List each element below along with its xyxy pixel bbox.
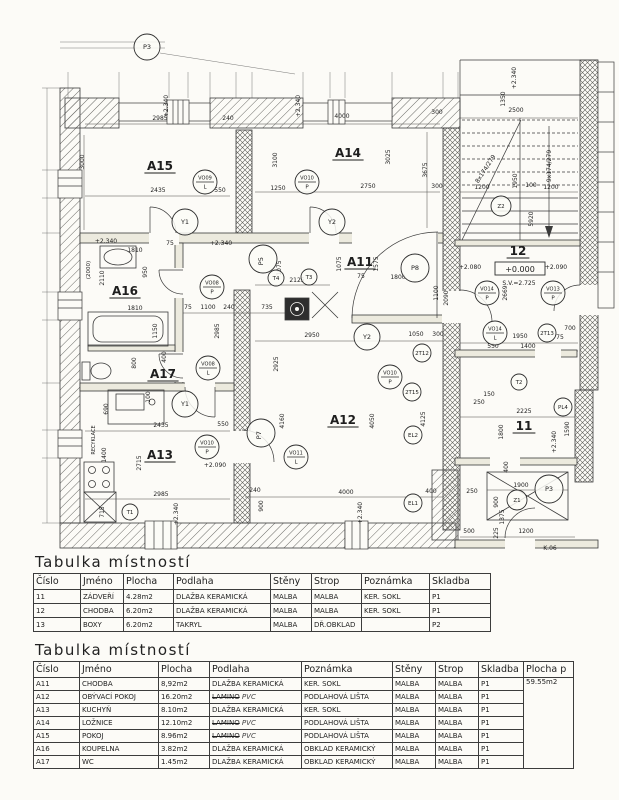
table-header-cell: Poznámka — [362, 574, 430, 590]
table-header-cell: Podlaha — [210, 662, 302, 678]
table-row: A16KOUPELNA3.82m2DLAŽBA KERAMICKÁOBKLAD … — [34, 743, 574, 756]
dimension-label: 75 — [357, 273, 365, 280]
table-cell: 3.82m2 — [159, 743, 210, 756]
dimension-label: 1200 — [518, 528, 533, 535]
dimension-label: 4125 — [420, 411, 427, 426]
table-cell: WC — [80, 756, 159, 769]
dimension-label: 250 — [466, 488, 478, 495]
table-cell: P1 — [430, 604, 491, 618]
table-header-cell: Plocha — [124, 574, 174, 590]
table-row: A12OBÝVACÍ POKOJ16.20m2LAMINO PVCPODLAHO… — [34, 691, 574, 704]
dimension-label: 3100 — [272, 152, 279, 167]
marker-label: VO10 — [300, 176, 314, 182]
table-cell: KER. SOKL — [302, 704, 393, 717]
level-mark: +2.340 — [295, 95, 302, 117]
table-cell: A12 — [34, 691, 80, 704]
table-row: A14LOŽNICE12.10m2LAMINO PVCPODLAHOVÁ LIŠ… — [34, 717, 574, 730]
dimension-label: 2985 — [214, 323, 221, 338]
dimension-label: 2090 — [443, 290, 450, 305]
table-row: A13KUCHYŇ8.10m2DLAŽBA KERAMICKÁKER. SOKL… — [34, 704, 574, 717]
table-cell: CHODBA — [81, 604, 124, 618]
table-cell: MALBA — [436, 717, 479, 730]
table-cell: MALBA — [271, 590, 312, 604]
table-header-cell: Číslo — [34, 574, 81, 590]
plan-note: K.06 — [543, 545, 557, 552]
dimension-label: 400 — [503, 461, 510, 473]
table-row: 13BOXY6.20m2TAKRYLMALBADŘ.OBKLADP2 — [34, 618, 491, 632]
dimension-label: 1050 — [408, 331, 423, 338]
room-label: A13 — [147, 448, 173, 462]
stove-icon — [84, 462, 114, 492]
table-cell: MALBA — [393, 730, 436, 743]
level-mark: +2.340 — [173, 503, 180, 525]
table-cell: 6.20m2 — [124, 604, 174, 618]
dimension-label: 225 — [493, 527, 500, 539]
table-cell: ZÁDVEŘÍ — [81, 590, 124, 604]
table-cell: OBKLAD KERAMICKÝ — [302, 756, 393, 769]
table-cell: P1 — [479, 717, 524, 730]
level-mark: +2.340 — [210, 240, 232, 247]
marker-label: P7 — [255, 431, 263, 439]
table-row: 11ZÁDVEŘÍ4.28m2DLAŽBA KERAMICKÁMALBAMALB… — [34, 590, 491, 604]
table-cell: 12.10m2 — [159, 717, 210, 730]
dimension-label: 1810 — [127, 247, 142, 254]
dimension-label: 4000 — [338, 489, 353, 496]
dimension-label: 100 — [145, 391, 152, 403]
room-table-2: Tabulka místnostíČísloJménoPlochaPodlaha… — [33, 641, 574, 769]
marker-label: T2 — [515, 380, 523, 386]
level-mark: +2.340 — [511, 67, 518, 89]
marker-label: 2T15 — [405, 390, 419, 396]
marker-label: VO14 — [488, 327, 502, 333]
marker-label: Y2 — [362, 333, 371, 341]
dimension-label: 1400 — [101, 447, 108, 462]
marker-label: Y2 — [327, 218, 336, 226]
toilet-icon — [82, 362, 111, 380]
table-cell: KOUPELNA — [80, 743, 159, 756]
table-cell: MALBA — [393, 743, 436, 756]
table-header-cell: Plocha — [159, 662, 210, 678]
marker-label: T1 — [126, 510, 134, 516]
table-cell: A17 — [34, 756, 80, 769]
dimension-label: 300 — [431, 109, 443, 116]
dimension-label: 100 — [525, 182, 537, 189]
dimension-label: 5920 — [528, 211, 535, 226]
level-mark: +2.090 — [545, 264, 567, 271]
plan-note: RECYKLACE — [91, 425, 97, 454]
table-header-cell: Poznámka — [302, 662, 393, 678]
room-table: ČísloJménoPlochaPodlahaStěnyStropPoznámk… — [33, 573, 491, 632]
marker-label: VO10 — [200, 441, 214, 447]
dimension-label: 1200 — [543, 184, 558, 191]
dimension-label: 300 — [432, 331, 444, 338]
dimension-label: 2225 — [516, 408, 531, 415]
table-cell: 12 — [34, 604, 81, 618]
table-cell: DLAŽBA KERAMICKÁ — [174, 604, 271, 618]
table-cell: A15 — [34, 730, 80, 743]
table-cell: LOŽNICE — [80, 717, 159, 730]
level-mark: +2.340 — [95, 238, 117, 245]
dimension-label: 75 — [166, 240, 174, 247]
table-cell: 8.96m2 — [159, 730, 210, 743]
table-title: Tabulka místností — [35, 641, 574, 659]
table-header-cell: Stěny — [271, 574, 312, 590]
dimension-label: 400 — [425, 488, 437, 495]
marker-label: VO10 — [383, 371, 397, 377]
dimension-label: 2750 — [360, 183, 375, 190]
dimension-label: 2110 — [99, 270, 106, 285]
marker-label: PL4 — [558, 405, 568, 411]
table-row: A17WC1.45m2DLAŽBA KERAMICKÁOBKLAD KERAMI… — [34, 756, 574, 769]
table-cell: DLAŽBA KERAMICKÁ — [210, 743, 302, 756]
table-cell: CHODBA — [80, 678, 159, 691]
marker-label: EL1 — [408, 501, 418, 507]
dimension-label: 900 — [258, 500, 265, 512]
dimension-label: 1350 — [500, 91, 507, 106]
table-header-cell: Podlaha — [174, 574, 271, 590]
marker-label: VO14 — [480, 287, 494, 293]
dimension-label: 1200 — [474, 184, 489, 191]
dimension-label: 2435 — [153, 422, 168, 429]
table-row: 12CHODBA6.20m2DLAŽBA KERAMICKÁMALBAMALBA… — [34, 604, 491, 618]
table-cell: MALBA — [271, 618, 312, 632]
table-row: A11CHODBA8,92m2DLAŽBA KERAMICKÁKER. SOKL… — [34, 678, 574, 691]
table-cell — [362, 618, 430, 632]
dimension-label: 950 — [142, 266, 149, 278]
table-cell: MALBA — [271, 604, 312, 618]
table-cell: KUCHYŇ — [80, 704, 159, 717]
dimension-label: 4160 — [279, 413, 286, 428]
dimension-label: 3025 — [385, 149, 392, 164]
table-cell: MALBA — [436, 691, 479, 704]
dimension-label: 1400 — [520, 343, 535, 350]
table-cell: P1 — [479, 756, 524, 769]
dimension-label: 3000 — [79, 154, 86, 169]
dimension-label: 75 — [184, 304, 192, 311]
marker-label: T3 — [305, 275, 313, 281]
marker-label: P3 — [143, 43, 151, 51]
marker-label: Y1 — [180, 400, 189, 408]
marker-label: P8 — [411, 264, 419, 272]
table-cell: 8.10m2 — [159, 704, 210, 717]
marker-label: T4 — [272, 276, 280, 282]
marker-label: P5 — [257, 257, 265, 265]
dimension-label: 400 — [161, 351, 168, 363]
room-table-1: Tabulka místnostíČísloJménoPlochaPodlaha… — [33, 553, 491, 632]
dimension-label: 1900 — [513, 482, 528, 489]
table-cell: PODLAHOVÁ LIŠTA — [302, 691, 393, 704]
dimension-label: 250 — [473, 399, 485, 406]
table-cell: DLAŽBA KERAMICKÁ — [210, 756, 302, 769]
plan-note: 8x174/279 — [474, 154, 498, 185]
table-cell: BOXY — [81, 618, 124, 632]
dimension-label: 715 — [99, 506, 106, 518]
dimension-label: 1250 — [270, 185, 285, 192]
table-cell: 13 — [34, 618, 81, 632]
dimension-label: 690 — [103, 403, 110, 415]
marker-label: VO13 — [546, 287, 560, 293]
table-cell: MALBA — [436, 704, 479, 717]
room-label: A14 — [335, 146, 361, 160]
table-cell: 1.45m2 — [159, 756, 210, 769]
level-mark: +2.080 — [459, 264, 481, 271]
table-cell: MALBA — [436, 756, 479, 769]
dimension-label: 900 — [493, 496, 500, 508]
table-cell: P1 — [479, 678, 524, 691]
floor-plan-drawing: 2985240300031002435550125040003003025367… — [0, 0, 619, 556]
kitchen-sink-icon — [108, 390, 164, 424]
table-title: Tabulka místností — [35, 553, 491, 571]
table-cell: A16 — [34, 743, 80, 756]
dimension-label: 2715 — [136, 455, 143, 470]
table-cell: PODLAHOVÁ LIŠTA — [302, 717, 393, 730]
table-cell: TAKRYL — [174, 618, 271, 632]
table-cell: DLAŽBA KERAMICKÁ — [174, 590, 271, 604]
table-cell: MALBA — [436, 678, 479, 691]
dimension-label: 4000 — [334, 113, 349, 120]
table-cell: 6.20m2 — [124, 618, 174, 632]
room-label: 12 — [510, 244, 527, 258]
table-cell: 59.55m2 — [524, 678, 574, 769]
dimension-label: 150 — [483, 391, 495, 398]
table-cell: KER. SOKL — [362, 590, 430, 604]
table-cell: KER. SOKL — [302, 678, 393, 691]
plan-note: +0.000 — [505, 265, 535, 274]
table-cell: MALBA — [436, 730, 479, 743]
marker-label: Z1 — [513, 498, 520, 504]
table-header-cell: Skladba — [479, 662, 524, 678]
room-label: A17 — [150, 367, 176, 381]
scanned-floorplan-page: { "plan": { "rooms": [ {"t":"A15","x":16… — [0, 0, 619, 800]
marker-label: VO08 — [205, 281, 219, 287]
plan-note: 9x174/279 — [546, 150, 553, 182]
dimension-label: 240 — [249, 487, 261, 494]
table-cell: MALBA — [393, 756, 436, 769]
room-table: ČísloJménoPlochaPodlahaPoznámkaStěnyStro… — [33, 661, 574, 769]
dimension-label: 1100 — [200, 304, 215, 311]
dimension-label: 1100 — [433, 285, 440, 300]
dimension-label: 700 — [564, 325, 576, 332]
dimension-label: 1590 — [564, 421, 571, 436]
table-header-cell: Jméno — [80, 662, 159, 678]
table-cell: A14 — [34, 717, 80, 730]
table-header-cell: Skladba — [430, 574, 491, 590]
table-cell: POKOJ — [80, 730, 159, 743]
marker-label: VO08 — [201, 362, 215, 368]
table-cell: MALBA — [312, 590, 362, 604]
dimension-label: 1800 — [498, 424, 505, 439]
table-header-cell: Stěny — [393, 662, 436, 678]
plan-note: S.V.=2.725 — [502, 280, 535, 287]
table-cell: MALBA — [393, 704, 436, 717]
room-label: A16 — [112, 284, 138, 298]
dimension-label: 4050 — [369, 413, 376, 428]
table-cell: P2 — [430, 618, 491, 632]
dimension-label: 1375 — [499, 509, 506, 524]
dimension-label: 75 — [556, 334, 564, 341]
table-cell: P1 — [430, 590, 491, 604]
marker-label: Z2 — [497, 204, 504, 210]
dimension-label: 550 — [214, 187, 226, 194]
table-cell: P1 — [479, 730, 524, 743]
marker-label: P3 — [545, 485, 553, 493]
table-cell: A11 — [34, 678, 80, 691]
dimension-label: 1950 — [512, 173, 519, 188]
table-cell: A13 — [34, 704, 80, 717]
table-cell: LAMINO PVC — [210, 730, 302, 743]
room-label: A11 — [347, 255, 373, 269]
dimension-label: 240 — [222, 115, 234, 122]
dimension-label: 1810 — [127, 305, 142, 312]
dimension-label: 2669 — [502, 285, 509, 300]
room-label: A15 — [147, 159, 173, 173]
table-cell: PODLAHOVÁ LIŠTA — [302, 730, 393, 743]
dimension-label: 300 — [431, 183, 443, 190]
table-cell: P1 — [479, 704, 524, 717]
table-cell: 16.20m2 — [159, 691, 210, 704]
room-label: 11 — [516, 419, 533, 433]
table-cell: P1 — [479, 743, 524, 756]
table-header-cell: Strop — [312, 574, 362, 590]
marker-label: VO09 — [198, 176, 212, 182]
dimension-label: 1075 — [336, 256, 343, 271]
dimension-label: 2950 — [304, 332, 319, 339]
marker-label: 2T12 — [415, 351, 429, 357]
dimension-label: 1950 — [512, 333, 527, 340]
table-header-cell: Číslo — [34, 662, 80, 678]
table-header-cell: Plocha p — [524, 662, 574, 678]
level-mark: +2.090 — [204, 462, 226, 469]
table-cell: LAMINO PVC — [210, 691, 302, 704]
dimension-label: 240 — [223, 304, 235, 311]
table-cell: MALBA — [393, 678, 436, 691]
room-label: A12 — [330, 413, 356, 427]
dimension-label: 1150 — [152, 323, 159, 338]
marker-label: VO11 — [289, 451, 303, 457]
plan-note: (2000) — [86, 261, 92, 279]
dimension-label: 3675 — [422, 162, 429, 177]
dimension-label: 2435 — [150, 187, 165, 194]
table-row: A15POKOJ8.96m2LAMINO PVCPODLAHOVÁ LIŠTAM… — [34, 730, 574, 743]
dimension-label: 2985 — [153, 491, 168, 498]
table-cell: MALBA — [393, 717, 436, 730]
table-cell: OBÝVACÍ POKOJ — [80, 691, 159, 704]
dimension-label: 800 — [131, 357, 138, 369]
marker-label: Y1 — [180, 218, 189, 226]
table-header-cell: Jméno — [81, 574, 124, 590]
table-cell: DŘ.OBKLAD — [312, 618, 362, 632]
dimension-label: 2925 — [273, 356, 280, 371]
level-mark: +2.340 — [163, 95, 170, 117]
appliance-icon — [285, 298, 309, 320]
table-cell: MALBA — [436, 743, 479, 756]
level-mark: +2.340 — [551, 431, 558, 453]
table-header-cell: Strop — [436, 662, 479, 678]
dimension-label: 735 — [261, 304, 273, 311]
table-cell: KER. SOKL — [362, 604, 430, 618]
table-cell: OBKLAD KERAMICKÝ — [302, 743, 393, 756]
dimension-label: 500 — [463, 528, 475, 535]
marker-label: 2T13 — [540, 331, 554, 337]
table-cell: MALBA — [312, 604, 362, 618]
table-cell: LAMINO PVC — [210, 717, 302, 730]
table-cell: MALBA — [393, 691, 436, 704]
table-cell: DLAŽBA KERAMICKÁ — [210, 704, 302, 717]
dimension-label: 2500 — [508, 107, 523, 114]
table-cell: 8,92m2 — [159, 678, 210, 691]
dimension-label: 550 — [217, 421, 229, 428]
table-cell: DLAŽBA KERAMICKÁ — [210, 678, 302, 691]
level-mark: +2.340 — [357, 502, 364, 524]
table-cell: 11 — [34, 590, 81, 604]
table-cell: P1 — [479, 691, 524, 704]
table-cell: 4.28m2 — [124, 590, 174, 604]
marker-label: EL2 — [408, 433, 418, 439]
